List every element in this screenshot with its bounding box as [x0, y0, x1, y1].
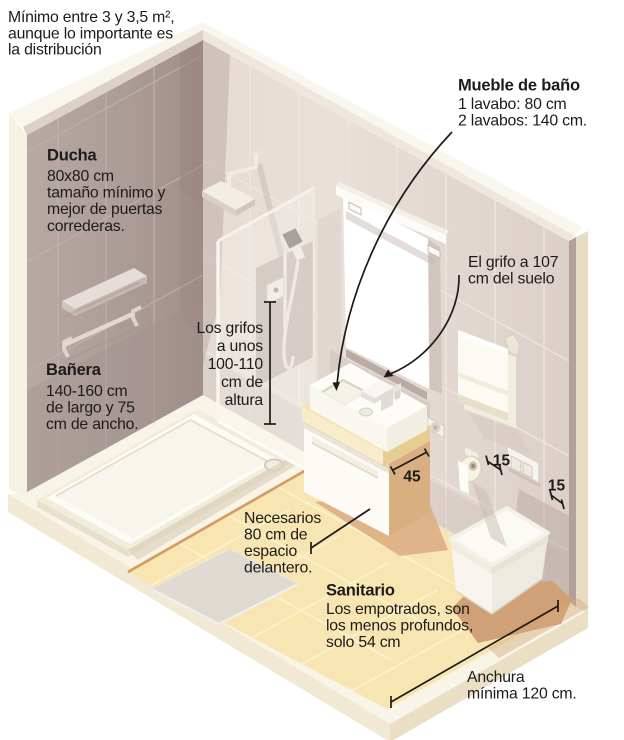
svg-text:140-160 cm: 140-160 cm	[46, 383, 127, 400]
svg-text:cm de: cm de	[221, 374, 263, 391]
svg-text:El grifo a 107: El grifo a 107	[468, 254, 558, 271]
svg-text:mejor de puertas: mejor de puertas	[47, 201, 163, 218]
svg-text:1 lavabo: 80 cm: 1 lavabo: 80 cm	[458, 96, 567, 113]
svg-text:15: 15	[493, 453, 511, 470]
svg-text:Sanitario: Sanitario	[326, 582, 395, 600]
svg-text:cm de ancho.: cm de ancho.	[46, 416, 138, 433]
svg-text:80 cm de: 80 cm de	[244, 527, 308, 544]
svg-text:Necesarios: Necesarios	[244, 510, 321, 527]
svg-text:100-110: 100-110	[208, 356, 264, 373]
svg-text:la distribución: la distribución	[8, 42, 102, 59]
svg-text:correderas.: correderas.	[47, 218, 125, 235]
svg-text:los menos profundos,: los menos profundos,	[326, 618, 473, 635]
svg-text:altura: altura	[225, 392, 264, 409]
svg-text:de largo y 75: de largo y 75	[46, 400, 135, 417]
svg-text:aunque lo importante es: aunque lo importante es	[8, 26, 173, 43]
svg-text:mínima 120 cm.: mínima 120 cm.	[467, 686, 577, 703]
svg-text:45: 45	[403, 469, 421, 486]
svg-text:espacio: espacio	[244, 543, 297, 560]
svg-text:cm del suelo: cm del suelo	[468, 271, 555, 288]
svg-text:Mueble de baño: Mueble de baño	[458, 77, 580, 95]
svg-text:2 lavabos: 140 cm.: 2 lavabos: 140 cm.	[458, 112, 587, 129]
svg-text:delantero.: delantero.	[244, 560, 312, 577]
svg-text:a unos: a unos	[217, 338, 264, 355]
svg-text:Bañera: Bañera	[46, 361, 102, 379]
svg-text:tamaño mínimo y: tamaño mínimo y	[47, 185, 165, 202]
svg-text:Ducha: Ducha	[47, 147, 97, 165]
svg-text:Los empotrados, son: Los empotrados, son	[326, 601, 470, 618]
svg-text:solo 54 cm: solo 54 cm	[326, 634, 400, 651]
svg-text:15: 15	[548, 478, 566, 495]
svg-text:Anchura: Anchura	[467, 669, 525, 686]
svg-text:Mínimo entre 3 y 3,5 m²,: Mínimo entre 3 y 3,5 m²,	[8, 9, 174, 26]
svg-text:80x80 cm: 80x80 cm	[47, 168, 114, 185]
svg-text:Los grifos: Los grifos	[197, 320, 264, 337]
